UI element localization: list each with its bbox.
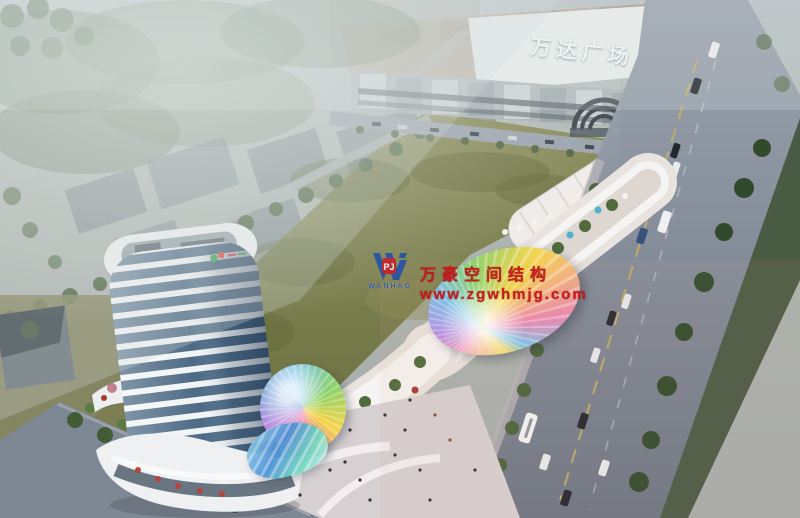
watermark-badge-text: PJ — [383, 262, 394, 272]
watermark: PJ WANHAO 万豪空间结构 www.zgwhmjg.com — [370, 252, 588, 303]
watermark-url-text: www.zgwhmjg.com — [420, 286, 588, 303]
rendering-canvas: 万达广场 PJ WANHAO 万豪空间结构 www.zgwhmjg.com — [0, 0, 800, 518]
watermark-logo-word: WANHAO — [368, 283, 412, 290]
watermark-company-text: 万豪空间结构 — [420, 261, 588, 285]
watermark-text-block: 万豪空间结构 www.zgwhmjg.com — [420, 252, 588, 303]
watermark-logo: PJ WANHAO — [370, 252, 410, 290]
w-monogram-icon: PJ — [372, 252, 408, 282]
